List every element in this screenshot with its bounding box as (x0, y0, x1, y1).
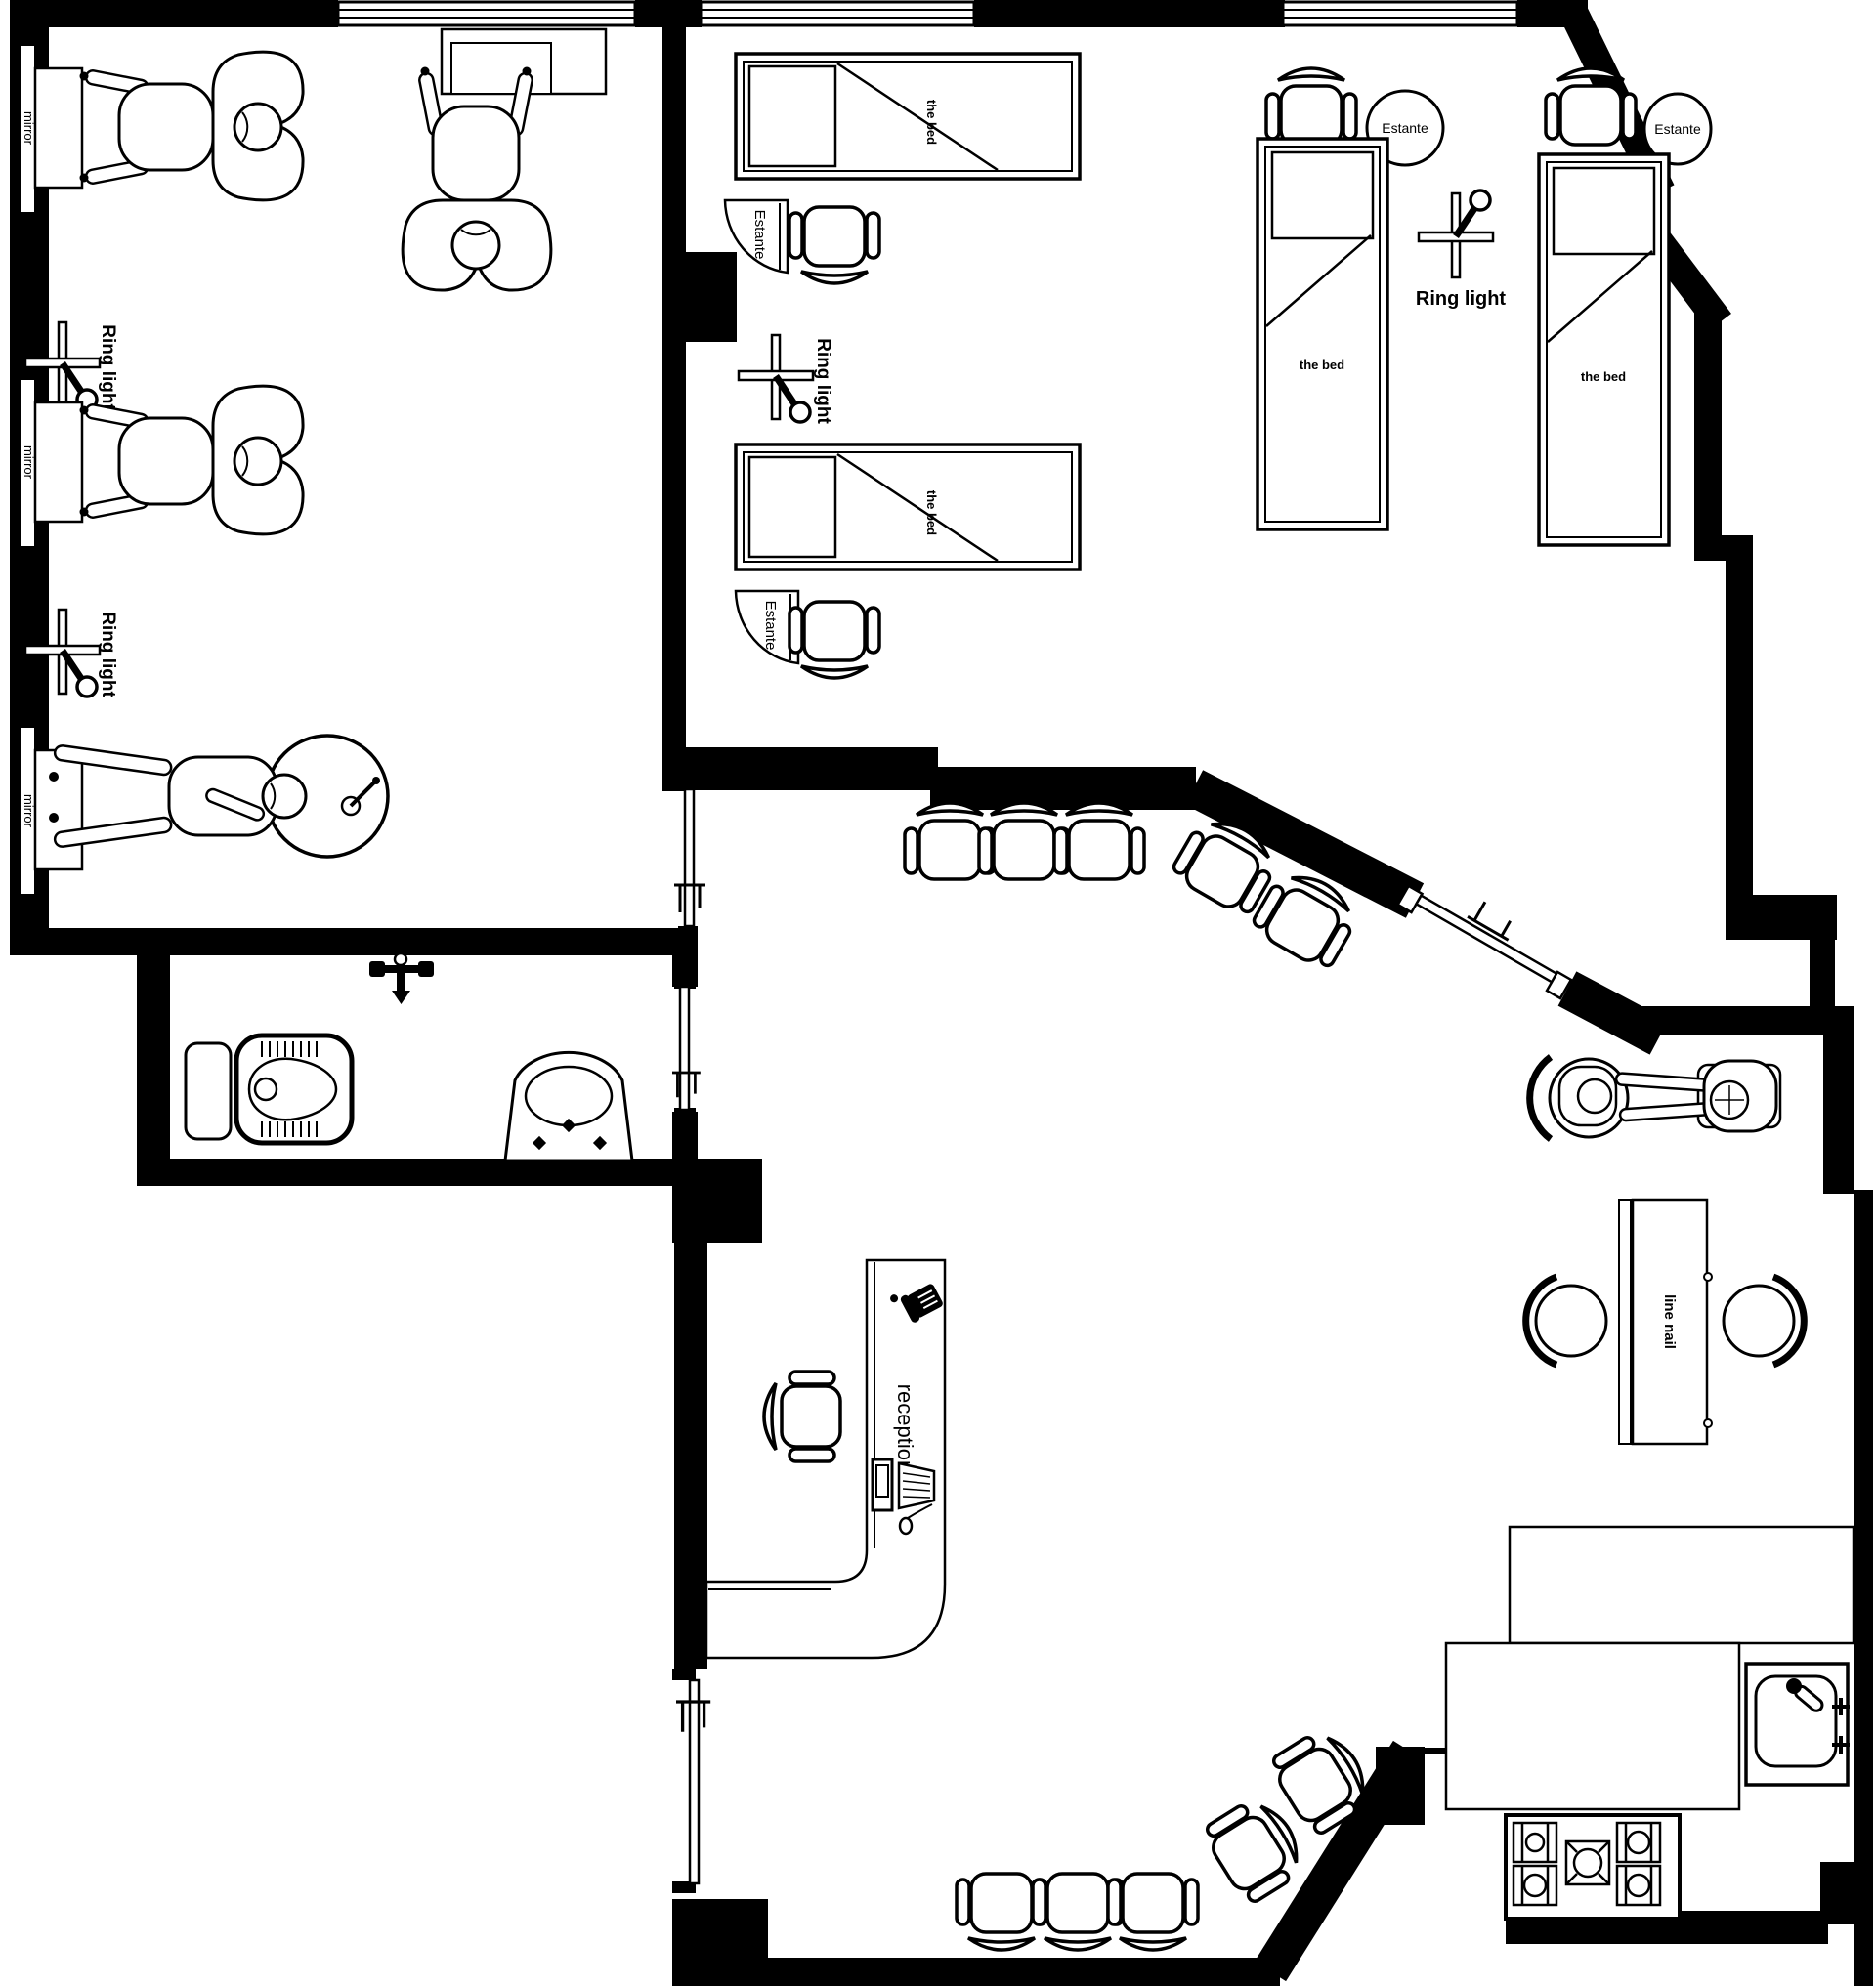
gas-stove (1506, 1815, 1680, 1919)
mirror-station-1: mirror (20, 45, 82, 213)
ring-light-label-2: Ring light (98, 612, 118, 697)
waiting-chair (1108, 1874, 1198, 1950)
salon-floor-plan: mirror Ring light mirror Ring light mirr… (0, 0, 1876, 1986)
mirror-label-3: mirror (21, 794, 36, 828)
desk-chair-3 (1266, 68, 1356, 145)
waiting-chair (1054, 803, 1144, 879)
ring-light-label-1: Ring light (98, 324, 118, 410)
sliding-door-bathroom (672, 979, 701, 1118)
ring-light-4: Ring light (1416, 190, 1507, 310)
bed-4-label: the bed (1581, 369, 1626, 384)
bed-2: the bed (736, 444, 1080, 570)
estante-label-3: Estante (1382, 120, 1428, 136)
round-chair-right (1724, 1277, 1804, 1365)
client-in-chair-figure-2 (80, 386, 304, 534)
manicure-figures (1530, 1057, 1780, 1139)
bed-3: the bed (1258, 139, 1387, 529)
line-nail-label: line nail (1661, 1294, 1678, 1349)
client-in-chair-figure-1 (80, 52, 304, 200)
window-bedroom-top-right (1283, 2, 1517, 25)
kitchen-sink (1746, 1664, 1850, 1785)
nail-area: line nail (1526, 1057, 1805, 1444)
estante-label-1: Estante (751, 210, 768, 260)
bed-1-label: the bed (924, 100, 939, 145)
entrance-door (672, 1669, 710, 1893)
window-bedroom-top-left (701, 2, 974, 25)
client-washing-figure (49, 736, 388, 857)
mirror-station-2: mirror (20, 379, 82, 547)
bed-2-label: the bed (924, 490, 939, 535)
bathroom (186, 953, 632, 1161)
shower-fixture-icon (369, 953, 434, 1004)
ring-light-label-3: Ring light (813, 338, 833, 424)
window-salon-top (338, 2, 635, 25)
diagonal-sliding-door (1398, 865, 1584, 998)
bed-4: the bed (1539, 154, 1669, 545)
mirror-label-2: mirror (21, 445, 36, 480)
client-in-chair-figure-3 (403, 67, 551, 291)
windows (338, 2, 1517, 25)
ring-light-3: Ring light (739, 335, 833, 424)
kitchen-counter-side (1446, 1643, 1739, 1809)
kitchen-counter-top (1510, 1527, 1854, 1643)
bed-1: the bed (736, 54, 1080, 179)
reception-chair (764, 1372, 840, 1461)
wash-basin (505, 1052, 632, 1161)
floor-plan-page: mirror Ring light mirror Ring light mirr… (0, 0, 1876, 1986)
kitchen-area (1446, 1527, 1854, 1919)
estante-label-2: Estante (762, 601, 779, 651)
bed-room: the bed Estante Ring light the bed Estan… (725, 54, 1711, 678)
ring-light-label-4: Ring light (1416, 288, 1507, 310)
desk-chair-2 (789, 602, 879, 678)
nail-table: line nail (1619, 1200, 1712, 1444)
mirror-label-1: mirror (21, 111, 36, 146)
desk-chair-1 (789, 207, 879, 283)
sliding-door-salon (674, 776, 705, 940)
round-chair-left (1526, 1277, 1606, 1365)
salon-room: mirror Ring light mirror Ring light mirr… (20, 29, 606, 895)
estante-label-4: Estante (1654, 121, 1701, 137)
reception-label: reception (893, 1384, 917, 1473)
reception-area: reception (706, 1260, 945, 1658)
squat-toilet (186, 1035, 352, 1143)
bed-3-label: the bed (1300, 358, 1344, 372)
